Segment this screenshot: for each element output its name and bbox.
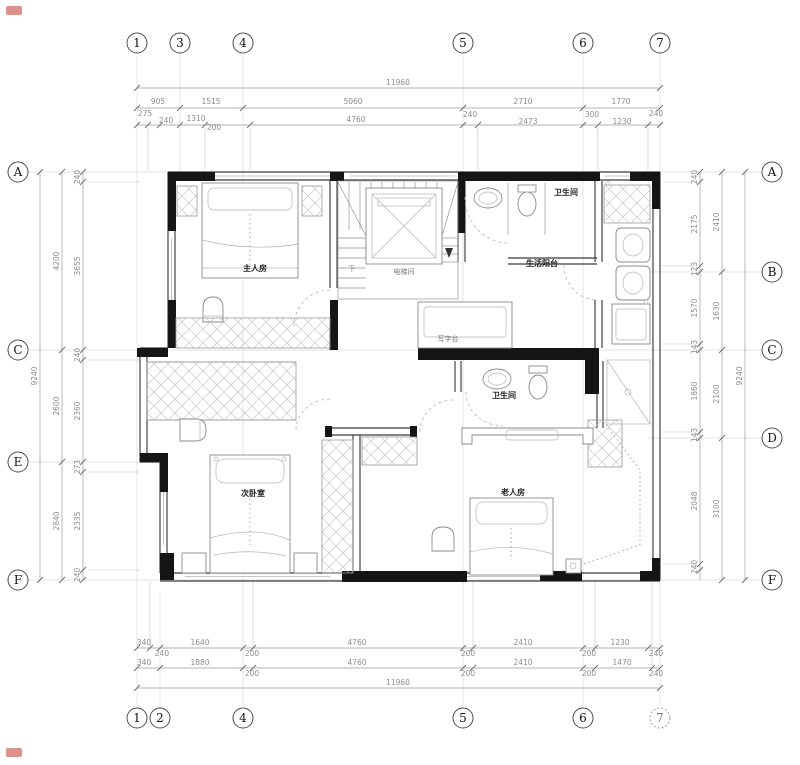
dim-label: 275: [138, 109, 153, 118]
svg-text:5: 5: [459, 711, 467, 725]
dim-label: 240: [73, 170, 82, 185]
dim-label: 2175: [690, 214, 699, 233]
grid-bubble-top-5: 5: [453, 33, 473, 53]
dim-label: 9240: [30, 366, 39, 385]
dim-label: 240: [155, 649, 170, 658]
svg-text:A: A: [767, 165, 777, 179]
dim-label: 1880: [190, 658, 209, 667]
svg-text:B: B: [768, 265, 777, 279]
room-label-guest-bedroom: 老人房: [500, 487, 525, 497]
nightstand-icon: [177, 186, 197, 216]
staircase: 电梯间 下: [338, 181, 458, 299]
dim-label: 1640: [190, 638, 209, 647]
toilet-icon: [518, 185, 536, 216]
dim-label: 2410: [712, 212, 721, 231]
basin-icon: [474, 186, 502, 208]
dim-label: 143: [690, 428, 699, 443]
grid-bubble-bottom-7: 7: [650, 708, 670, 728]
svg-text:4: 4: [239, 36, 247, 50]
grid-lines: [28, 55, 762, 706]
svg-text:6: 6: [579, 36, 587, 50]
svg-text:3: 3: [176, 36, 184, 50]
dim-label: 4760: [347, 658, 366, 667]
grid-bubble-right-B: B: [762, 262, 782, 282]
svg-text:C: C: [767, 343, 776, 357]
room-label-service-balcony: 生活阳台: [526, 258, 558, 268]
dim-label: 1630: [712, 301, 721, 320]
room-label-master-bedroom: 主人房: [243, 263, 267, 273]
dim-label: 1515: [201, 97, 220, 106]
svg-text:1: 1: [133, 36, 141, 50]
dim-label: 5060: [343, 97, 362, 106]
dim-label: 200: [245, 649, 260, 658]
dim-label: 4760: [346, 115, 365, 124]
dim-label: 273: [73, 460, 82, 475]
dim-label: 240: [649, 669, 664, 678]
svg-text:F: F: [768, 573, 776, 587]
svg-text:6: 6: [579, 711, 587, 725]
grid-bubble-bottom-5: 5: [453, 708, 473, 728]
stair-down-label: 下: [349, 265, 356, 273]
grid-bubble-top-7: 7: [650, 33, 670, 53]
dim-label: 1860: [690, 381, 699, 400]
dim-label: 2840: [52, 511, 61, 530]
fixture-icon: [566, 559, 581, 573]
dim-label: 2100: [712, 384, 721, 403]
bathroom-mid: 卫生间: [466, 360, 650, 426]
svg-text:D: D: [767, 431, 777, 445]
dim-label: 240: [690, 560, 699, 575]
svg-text:A: A: [13, 165, 23, 179]
cabinet-icon: [604, 185, 650, 223]
dim-label: 240: [73, 568, 82, 583]
dim-label: 2710: [513, 97, 532, 106]
dim-label: 200: [582, 669, 597, 678]
stair-arrow-icon: [445, 248, 453, 258]
wardrobe-icon: [322, 440, 353, 573]
grid-bubble-bottom-2: 2: [150, 708, 170, 728]
dim-label: 2473: [518, 117, 537, 126]
dim-label: 200: [245, 669, 260, 678]
dim-label: 200: [461, 649, 476, 658]
armchair-icon: [432, 527, 454, 551]
sink-icon: [616, 228, 650, 262]
toilet-icon: [529, 366, 547, 399]
svg-text:2: 2: [156, 711, 164, 725]
grid-bubble-left-E: E: [8, 452, 28, 472]
svg-text:4: 4: [239, 711, 247, 725]
dim-label: 240: [159, 116, 174, 125]
shower-icon: [607, 360, 650, 424]
watermark-mark: [6, 748, 22, 757]
watermark-mark: [6, 6, 22, 15]
dim-label: 1570: [690, 298, 699, 317]
dim-label: 3100: [712, 499, 721, 518]
svg-text:C: C: [13, 343, 22, 357]
dim-label: 4200: [52, 251, 61, 270]
dim-label: 11960: [386, 678, 410, 687]
dim-label: 1230: [612, 117, 631, 126]
dim-label: 240: [649, 649, 664, 658]
svg-text:7: 7: [656, 711, 664, 725]
grid-bubble-left-A: A: [8, 162, 28, 182]
dim-label: 9240: [735, 366, 744, 385]
dim-label: 200: [461, 669, 476, 678]
dim-label: 300: [585, 110, 600, 119]
service-balcony: 生活阳台: [526, 181, 650, 344]
grid-bubble-top-1: 1: [127, 33, 147, 53]
bathroom-top: 卫生间: [465, 185, 578, 243]
grid-bubble-right-D: D: [762, 428, 782, 448]
dim-label: 2600: [52, 396, 61, 415]
grid-bubble-bottom-1: 1: [127, 708, 147, 728]
grid-bubble-right-F: F: [762, 570, 782, 590]
basin-icon: [483, 369, 511, 389]
room-label-second-bedroom: 次卧室: [241, 488, 265, 498]
grid-bubble-right-C: C: [762, 340, 782, 360]
dim-label: 200: [207, 123, 222, 132]
master-bedroom: 主人房: [176, 183, 330, 348]
floor-plan-page: 11960 905 1515 5060 2710 1770 275 240 13…: [0, 0, 800, 765]
guest-bedroom: 老人房: [362, 400, 640, 575]
armchair-icon: [180, 419, 206, 441]
grid-bubbles: 1 3 4 5 6 7 1 2 4 5 6 7 A C E F A B C D …: [8, 33, 782, 728]
dim-label: 4760: [347, 638, 366, 647]
dim-label: 2048: [690, 491, 699, 510]
room-label-desk: 写字台: [438, 334, 459, 343]
dim-label: 240: [463, 110, 478, 119]
nightstand-icon: [302, 186, 322, 216]
dim-label: 143: [690, 340, 699, 355]
grid-bubble-left-F: F: [8, 570, 28, 590]
svg-text:1: 1: [133, 711, 141, 725]
dim-label: 240: [690, 170, 699, 185]
dim-label: 3655: [73, 256, 82, 275]
svg-text:E: E: [14, 455, 23, 469]
grid-bubble-top-6: 6: [573, 33, 593, 53]
grid-bubble-bottom-6: 6: [573, 708, 593, 728]
closet-icon: [147, 362, 296, 420]
dim-label: 1230: [610, 638, 629, 647]
grid-bubble-right-A: A: [762, 162, 782, 182]
second-bedroom: 次卧室: [147, 362, 353, 573]
dim-label: 2410: [513, 658, 532, 667]
dim-label: 240: [649, 109, 664, 118]
dim-label: 2410: [513, 638, 532, 647]
bed-icon: [470, 498, 553, 575]
dim-label: 340: [137, 658, 152, 667]
door-arc: [564, 265, 597, 300]
dim-label: 11960: [386, 78, 410, 87]
grid-bubble-left-C: C: [8, 340, 28, 360]
door-arc: [420, 400, 453, 432]
svg-text:F: F: [14, 573, 22, 587]
room-label-bathroom-top: 卫生间: [554, 187, 578, 197]
grid-bubble-top-3: 3: [170, 33, 190, 53]
closet-icon: [362, 437, 417, 465]
hall-desk: 写字台: [418, 302, 512, 348]
dim-label: 200: [582, 649, 597, 658]
dim-label: 1770: [611, 97, 630, 106]
dim-label: 1310: [186, 114, 205, 123]
dim-label: 340: [137, 638, 152, 647]
dim-label: 2335: [73, 511, 82, 530]
wardrobe-icon: [176, 318, 330, 348]
dim-label: 1470: [612, 658, 631, 667]
dim-label: 123: [690, 262, 699, 277]
dim-label: 240: [73, 348, 82, 363]
bed-icon: [210, 455, 290, 573]
sink-icon: [616, 266, 650, 300]
svg-text:5: 5: [459, 36, 467, 50]
washing-machine-icon: [612, 300, 650, 344]
grid-bubble-top-4: 4: [233, 33, 253, 53]
desk-icon: [418, 302, 512, 348]
door-arc: [296, 399, 330, 430]
counter-icon: [462, 428, 593, 444]
dim-label: 905: [151, 97, 166, 106]
nightstand-icon: [294, 553, 317, 573]
room-label-elevator: 电梯间: [394, 267, 415, 276]
room-label-bathroom-mid: 卫生间: [492, 390, 516, 400]
nightstand-icon: [182, 553, 206, 573]
grid-bubble-bottom-4: 4: [233, 708, 253, 728]
elevator-icon: [366, 188, 442, 264]
svg-text:7: 7: [656, 36, 664, 50]
dim-label: 2360: [73, 401, 82, 420]
